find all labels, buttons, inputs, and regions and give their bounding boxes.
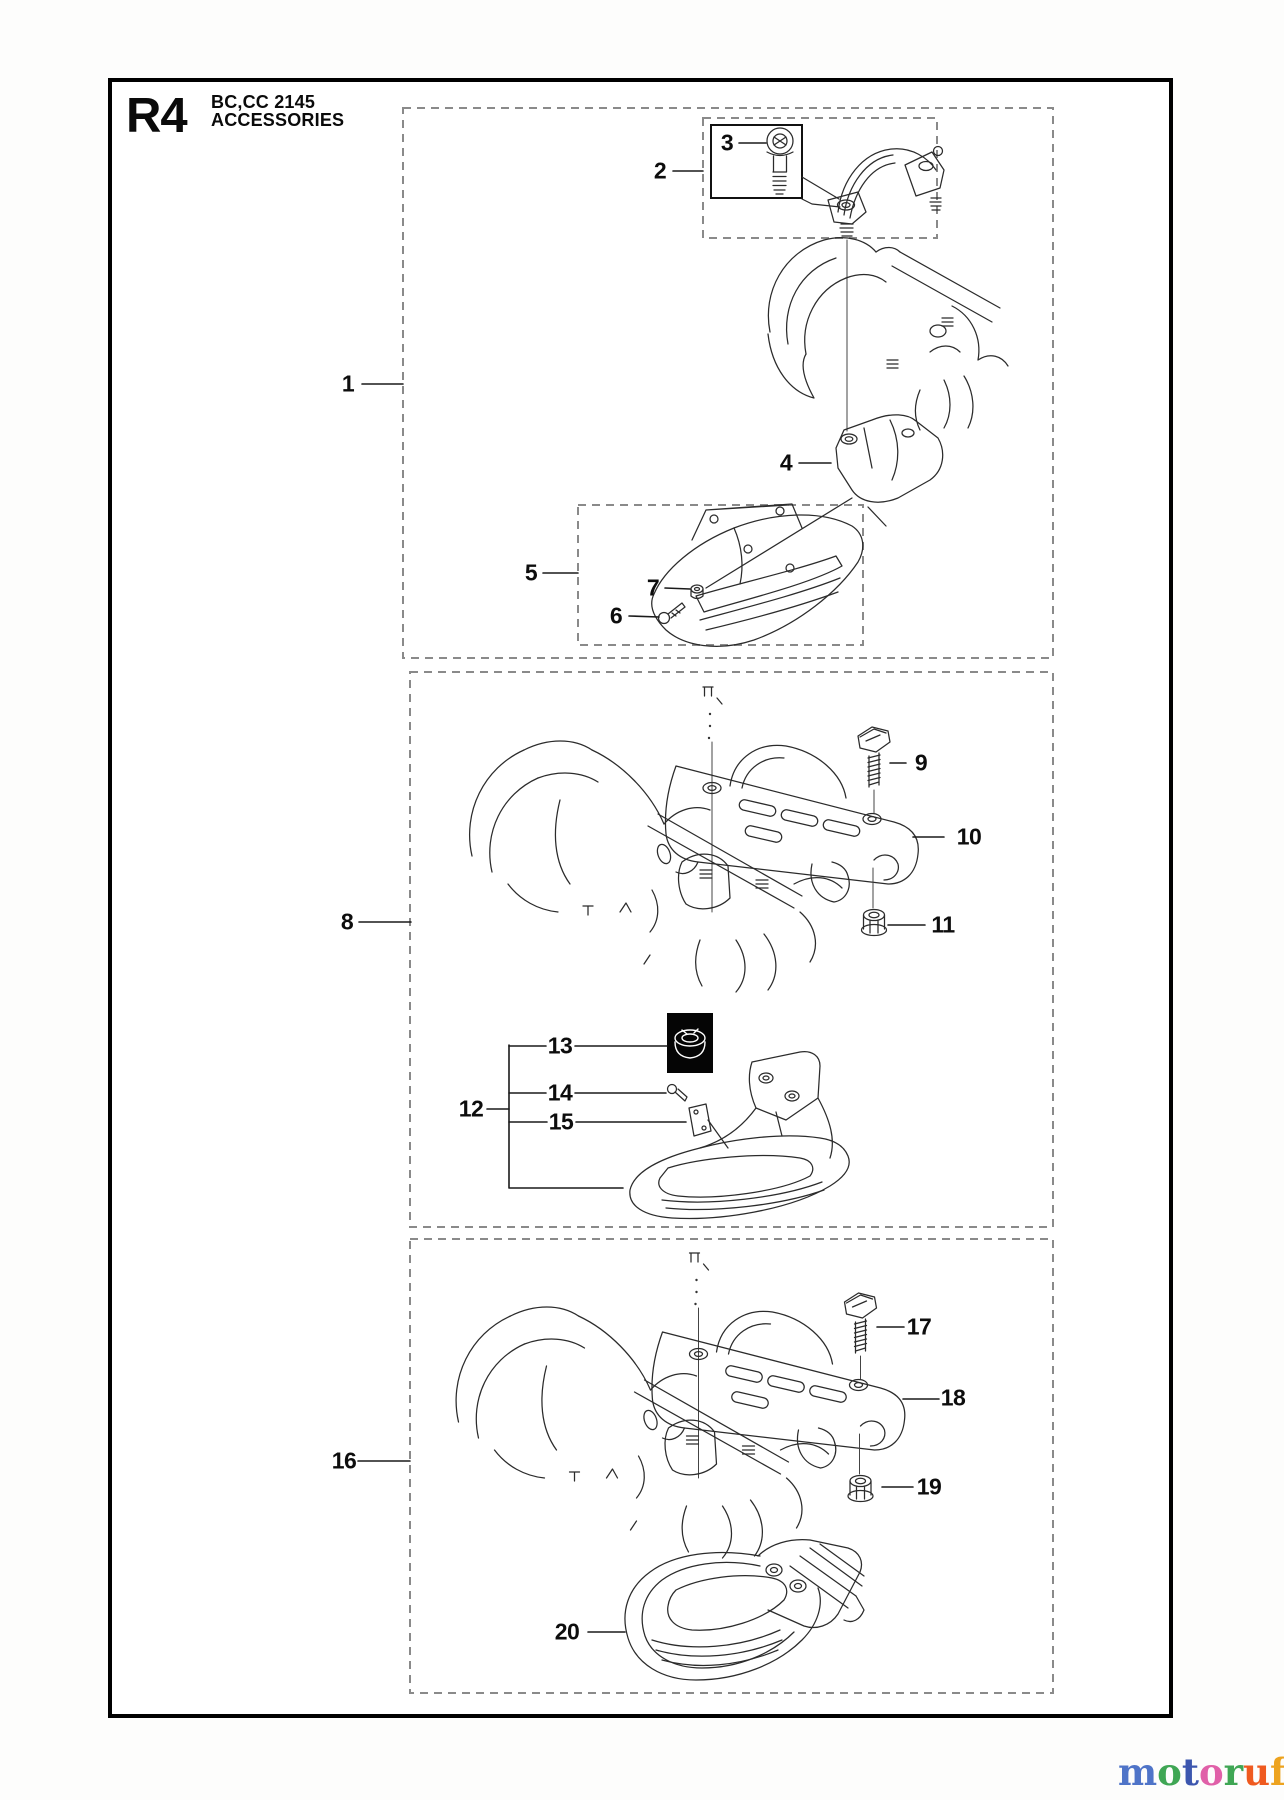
callout-5: 5 (525, 560, 537, 587)
callout-1: 1 (342, 371, 354, 398)
callout-12: 12 (459, 1096, 484, 1123)
callout-15: 15 (549, 1109, 574, 1136)
callout-19: 19 (917, 1474, 942, 1501)
section16-machine-drawing (456, 1253, 905, 1558)
callout-16: 16 (332, 1448, 357, 1475)
callout-7: 7 (647, 575, 659, 602)
watermark-logo: motoruf.de (1118, 1752, 1284, 1800)
callout-17: 17 (907, 1314, 932, 1341)
watermark-letter: r (1224, 1750, 1244, 1794)
part-5-guard-assembly (652, 504, 863, 646)
part-20-guard (625, 1540, 864, 1680)
part-12-guard (630, 1052, 849, 1219)
part-14-screw (668, 1085, 688, 1102)
flange-nut (862, 868, 887, 936)
callout-10: 10 (957, 824, 982, 851)
watermark-letter: m (1118, 1750, 1157, 1794)
watermark-letter: o (1199, 1750, 1224, 1794)
watermark-letter: f (1270, 1750, 1284, 1794)
callout-2: 2 (654, 158, 666, 185)
watermark-letters: motoruf (1118, 1750, 1284, 1794)
exploded-diagram-art (0, 0, 1284, 1800)
callout-3: 3 (721, 130, 733, 157)
assembly-box-8 (410, 672, 1053, 1227)
section8-machine-drawing (470, 687, 919, 992)
part-13-trimmer-head-box (667, 1013, 713, 1073)
watermark-letter: t (1182, 1750, 1199, 1794)
callout-4: 4 (780, 450, 792, 477)
callout-11: 11 (931, 912, 954, 939)
watermark-letter: o (1157, 1750, 1182, 1794)
callout-8: 8 (341, 909, 353, 936)
t-bolt (858, 727, 890, 813)
watermark-letter: u (1243, 1750, 1270, 1794)
callout-leader-lines (358, 143, 944, 1632)
parts-diagram-page: R4 BC,CC 2145 ACCESSORIES (0, 0, 1284, 1800)
part-7-nut (691, 585, 703, 599)
callout-9: 9 (915, 750, 927, 777)
callout-6: 6 (610, 603, 622, 630)
callout-14: 14 (548, 1080, 573, 1107)
callout-20: 20 (555, 1619, 580, 1646)
callout-18: 18 (941, 1385, 966, 1412)
part-6-screw (659, 603, 686, 624)
callout-13: 13 (548, 1033, 573, 1060)
section1-machine-drawing (768, 238, 1008, 431)
part-2-clamp (802, 147, 944, 237)
assembly-box-16 (410, 1239, 1053, 1693)
part-15-plate (689, 1104, 728, 1148)
